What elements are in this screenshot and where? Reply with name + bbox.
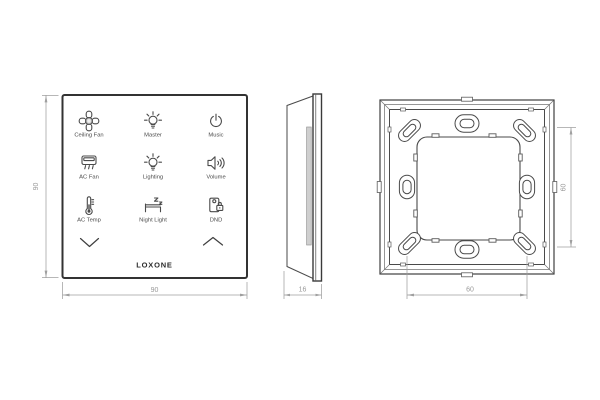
- drawing-svg: Ceiling Fan Master Music AC Fan Lighting…: [0, 0, 600, 400]
- dimension-front-width: 90: [63, 282, 248, 299]
- dimension-front-height: 90: [33, 95, 59, 277]
- dimension-back-vertical: 60: [557, 128, 576, 248]
- front-view: Ceiling Fan Master Music AC Fan Lighting…: [63, 95, 248, 278]
- button-label: AC Temp: [77, 218, 101, 224]
- button-label: Music: [208, 133, 223, 139]
- button-label: AC Fan: [79, 175, 99, 181]
- mounting-plate: [417, 137, 520, 240]
- brand-logo: LOXONE: [136, 261, 172, 270]
- screw-slot-bottom-center: [455, 241, 479, 258]
- dim-label-side-depth: 16: [299, 287, 307, 294]
- dim-label-front-width: 90: [151, 287, 159, 294]
- side-mount-strip: [307, 127, 312, 245]
- side-view: [287, 94, 322, 281]
- screw-slot-middle-left: [399, 175, 414, 198]
- screw-slot-middle-right: [519, 175, 534, 198]
- button-label: Lighting: [143, 175, 163, 181]
- dim-label-back-vertical: 60: [561, 184, 568, 192]
- button-label: DND: [210, 218, 223, 224]
- button-label: Ceiling Fan: [74, 133, 103, 139]
- dim-label-front-height: 90: [33, 183, 40, 191]
- button-label: Master: [144, 133, 162, 139]
- back-view: [377, 97, 557, 277]
- screw-slot-top-center: [455, 115, 479, 132]
- dim-label-back-horizontal: 60: [466, 287, 474, 294]
- button-label: Night Light: [139, 218, 167, 224]
- technical-drawing: Ceiling Fan Master Music AC Fan Lighting…: [0, 0, 600, 400]
- side-glass: [313, 94, 322, 281]
- button-label: Volume: [206, 175, 225, 181]
